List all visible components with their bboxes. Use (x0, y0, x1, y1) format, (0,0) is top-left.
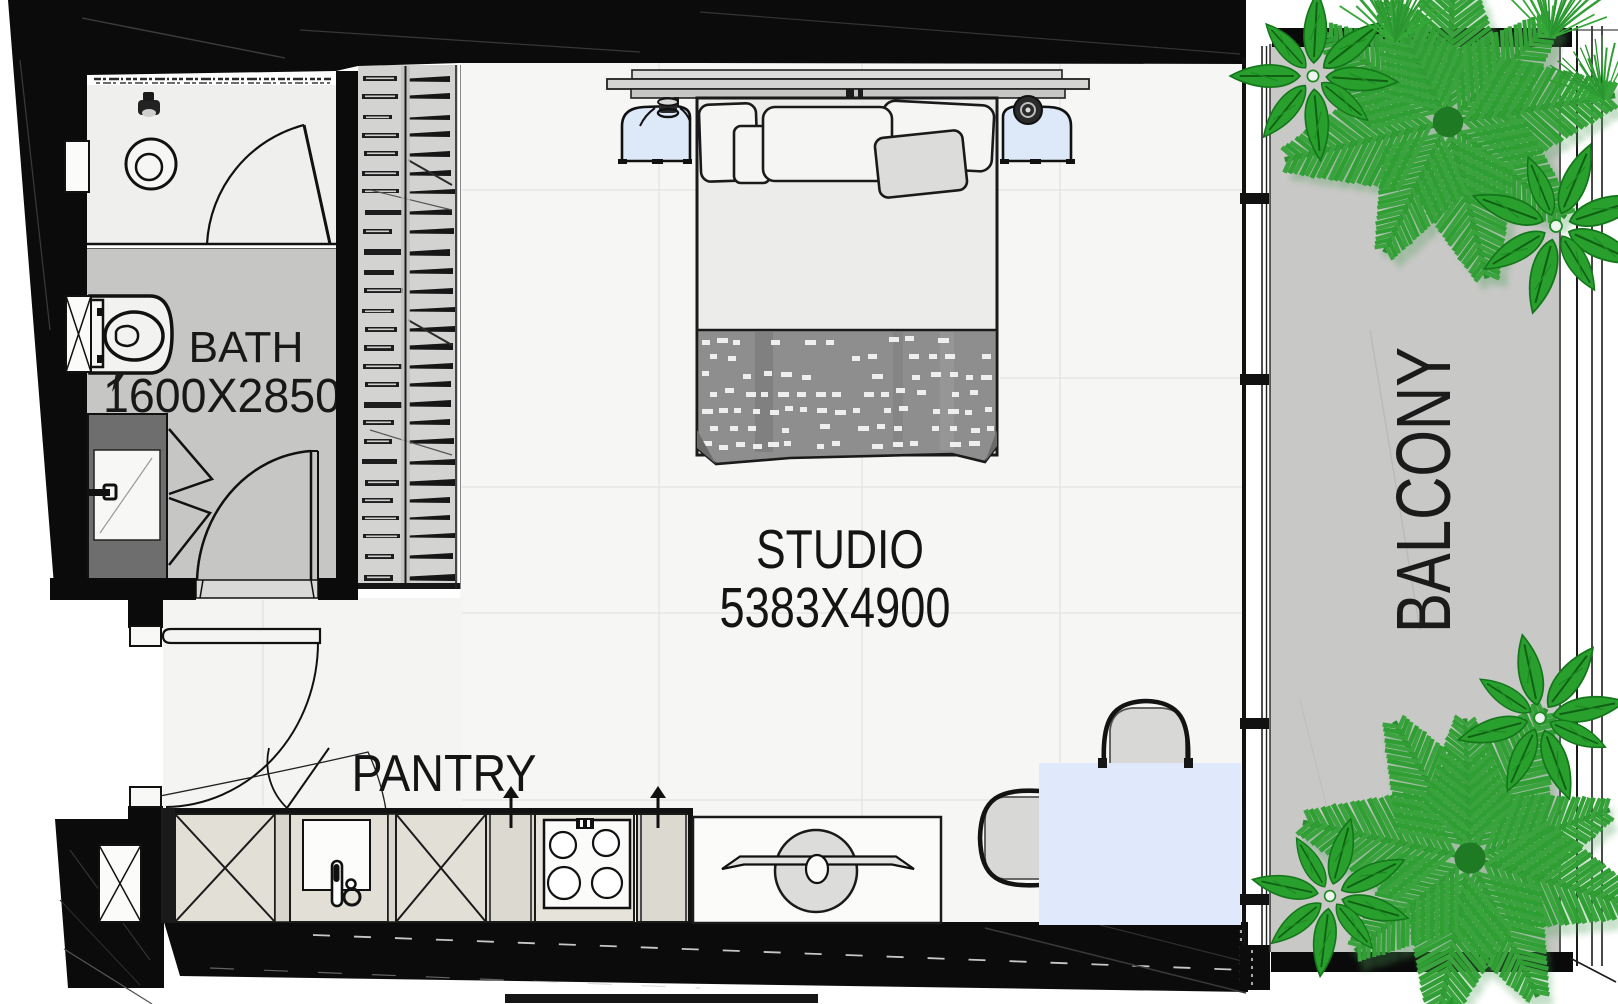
svg-text:BALCONY: BALCONY (1381, 347, 1467, 633)
svg-text:1600X2850: 1600X2850 (103, 370, 341, 423)
svg-text:PANTRY: PANTRY (352, 745, 537, 803)
svg-text:STUDIO: STUDIO (756, 518, 924, 580)
svg-text:BATH: BATH (189, 323, 304, 372)
svg-text:5383X4900: 5383X4900 (720, 576, 951, 640)
